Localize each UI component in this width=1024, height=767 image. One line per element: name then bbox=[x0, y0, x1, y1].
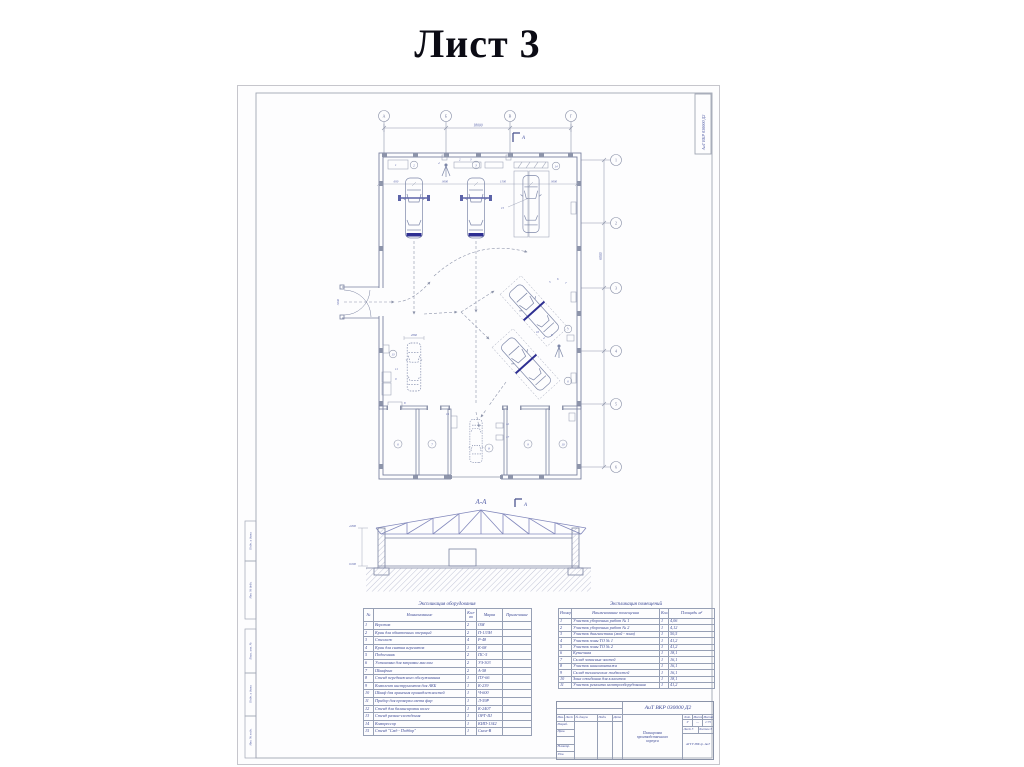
name: Шкаф для хранения принадлежностей bbox=[374, 690, 466, 698]
section-building bbox=[366, 528, 591, 575]
margin-box-label: Взам. инв. № bbox=[249, 642, 253, 659]
hdr-podp: Подп. bbox=[597, 714, 612, 721]
col-name: Наименование bbox=[374, 609, 466, 622]
axis-label: Г bbox=[570, 114, 573, 119]
margin-boxes bbox=[245, 521, 256, 758]
equip-mark: 4 bbox=[543, 336, 545, 340]
table-row: 10Шкаф для хранения принадлежностей1Ч-60… bbox=[364, 690, 532, 698]
dim-height: 4.800 bbox=[349, 524, 356, 528]
name: Стенд передвижного обслуживания bbox=[374, 675, 466, 683]
qty: 1 bbox=[466, 728, 477, 736]
axis-label: 6 bbox=[615, 465, 617, 470]
num: 12 bbox=[364, 705, 374, 713]
sheets-label: Листов bbox=[699, 727, 709, 731]
name: Шкафчик bbox=[374, 667, 466, 675]
tripod-icon bbox=[442, 164, 450, 177]
table-row: 2Кран для обкаточных операций2П-133Н bbox=[364, 629, 532, 637]
note bbox=[503, 675, 532, 683]
mark: УЗ-303 bbox=[477, 659, 503, 667]
equip-mark: 12 bbox=[506, 422, 510, 426]
name: Стенд "Смд - Подбор" bbox=[374, 728, 466, 736]
mark: П-133Н bbox=[477, 629, 503, 637]
car-bumper bbox=[469, 233, 484, 237]
lit-value: У bbox=[682, 719, 692, 726]
floor-plan: А Б В Г 18000 А bbox=[336, 111, 622, 480]
name: Стенд для балансировки колес bbox=[374, 705, 466, 713]
col-name: Наименование помещения bbox=[572, 609, 660, 619]
name: Установка для заправки маслом bbox=[374, 659, 466, 667]
name: Прибор для проверки света фар bbox=[374, 697, 466, 705]
axis-label: В bbox=[509, 114, 512, 119]
qty: 2 bbox=[466, 659, 477, 667]
mark: К-239 bbox=[477, 682, 503, 690]
name: Кран для обкаточных операций bbox=[374, 629, 466, 637]
dim-right: 6000 bbox=[599, 252, 603, 259]
name: Участок ремонта электрооборудования bbox=[572, 682, 660, 688]
axis-label: 5 bbox=[615, 402, 617, 407]
dim-zero: 0.000 bbox=[349, 562, 356, 566]
table-row: 13Стенд развал-схождения1ОРГ-Ш bbox=[364, 713, 532, 721]
room-number: 7 bbox=[431, 442, 433, 446]
col-num: № bbox=[364, 609, 374, 622]
qty: 2 bbox=[466, 652, 477, 660]
table-header-row: № Наименование Кол-во Марка Примечание bbox=[364, 609, 532, 622]
num: 4 bbox=[364, 644, 374, 652]
section-title: А-А bbox=[475, 498, 488, 506]
sheet-label: Лист bbox=[684, 727, 691, 731]
axis-label: 4 bbox=[615, 349, 617, 354]
sheet-code-vertical: АиТ ВКР 030000 Д2 bbox=[701, 115, 706, 151]
left-parking-car bbox=[404, 336, 424, 391]
equip-mark: 1 bbox=[395, 163, 397, 167]
note bbox=[503, 667, 532, 675]
qty: 1 bbox=[466, 675, 477, 683]
note bbox=[503, 728, 532, 736]
equip-mark: 7 bbox=[565, 281, 567, 285]
axis-label: 1 bbox=[615, 158, 617, 163]
table-row: 14Компрессор1КИП-1342 bbox=[364, 720, 532, 728]
section-cut-marker-bottom bbox=[515, 499, 522, 507]
hdr-izm: Изм. bbox=[557, 714, 564, 721]
premises-table-grid: Номер Наименование помещения Кол. Площад… bbox=[558, 608, 715, 689]
diagnostic-zone bbox=[514, 162, 549, 237]
qty: 2 bbox=[466, 667, 477, 675]
dim-line-right bbox=[602, 158, 606, 469]
col-num: Номер bbox=[559, 609, 572, 619]
equip-mark: 2 bbox=[459, 158, 461, 162]
angled-car-1 bbox=[500, 276, 568, 347]
circled-num: 6 bbox=[567, 379, 569, 383]
role-nkontr: Н.контр. bbox=[557, 744, 574, 752]
table-row: 11Прибор для проверки света фар1Л-59Р bbox=[364, 697, 532, 705]
drawing-sheet: АиТ ВКР 030000 Д2 Подп. и дата Инв. № ду… bbox=[237, 85, 720, 765]
note bbox=[503, 690, 532, 698]
mark: ОРГ-Ш bbox=[477, 713, 503, 721]
qty: 1 bbox=[466, 697, 477, 705]
num: 5 bbox=[364, 652, 374, 660]
table-row: 4Кран для снятия агрегатов1К-08 bbox=[364, 644, 532, 652]
circled-num: 3 bbox=[475, 163, 477, 167]
table-row: 3Стеллаж4Р-48 bbox=[364, 637, 532, 645]
equip-mark: 10 bbox=[536, 330, 540, 334]
qty: 1 bbox=[466, 690, 477, 698]
margin-box-label: Инв. № дубл. bbox=[249, 581, 253, 599]
num: 10 bbox=[364, 690, 374, 698]
section-view: А-А А bbox=[349, 498, 591, 592]
table-header-row: Номер Наименование помещения Кол. Площад… bbox=[559, 609, 715, 619]
num: 14 bbox=[364, 720, 374, 728]
ground-hatch bbox=[366, 569, 591, 592]
traffic-flow-arrows bbox=[344, 241, 527, 427]
dim-inner: 3600 bbox=[551, 180, 558, 184]
room-number: 9 bbox=[527, 442, 529, 446]
room-number: 6 bbox=[397, 442, 399, 446]
dim-inner: 1500 bbox=[500, 180, 507, 184]
axis-label: 3 bbox=[615, 286, 617, 291]
tripod-icon bbox=[555, 345, 563, 358]
leader-line bbox=[508, 198, 529, 207]
mark: КИП-1342 bbox=[477, 720, 503, 728]
note bbox=[503, 629, 532, 637]
equipment-table-title: Экспликация оборудования bbox=[363, 602, 531, 607]
service-bay-car-2 bbox=[460, 178, 492, 238]
mark: К-2407 bbox=[477, 705, 503, 713]
qty: 1 bbox=[466, 644, 477, 652]
margin-box-label: Подп. и дата bbox=[249, 532, 253, 551]
name: Стеллаж bbox=[374, 637, 466, 645]
organization: АГТУ ИФ гр. АиТ bbox=[684, 743, 713, 747]
doc-name-line: корпуса bbox=[646, 739, 659, 743]
num: 1 bbox=[364, 622, 374, 630]
mark: ОМ bbox=[477, 622, 503, 630]
bottom-rooms bbox=[379, 405, 581, 480]
equip-mark: 17 bbox=[506, 435, 510, 439]
mark: ПС-5 bbox=[477, 652, 503, 660]
num: 8 bbox=[364, 675, 374, 683]
role-prov: Пров. bbox=[557, 729, 574, 737]
table-row: 15Стенд "Смд - Подбор"1Смол-В bbox=[364, 728, 532, 736]
right-wall-equipment bbox=[567, 202, 576, 421]
title-block: Изм. Лист № докум. Подп. Дата Разраб. Пр… bbox=[556, 701, 714, 760]
qty: 1 bbox=[466, 720, 477, 728]
name: Кран для снятия агрегатов bbox=[374, 644, 466, 652]
table-row: 7Шкафчик2А-58 bbox=[364, 667, 532, 675]
num: 9 bbox=[364, 682, 374, 690]
equipment-table-grid: № Наименование Кол-во Марка Примечание 1… bbox=[363, 608, 532, 736]
table-row: 9Комплект инструментов для АКБ1К-239 bbox=[364, 682, 532, 690]
dim-line-inner bbox=[377, 182, 579, 186]
roof-truss bbox=[376, 510, 586, 534]
qty: 2 bbox=[466, 622, 477, 630]
premises-table: Экспликация помещений Номер Наименование… bbox=[558, 602, 714, 689]
axis-label: 2 bbox=[615, 221, 617, 226]
area: 41,2 bbox=[669, 682, 715, 688]
name: Компрессор bbox=[374, 720, 466, 728]
section-cut-marker-top bbox=[513, 133, 520, 142]
qty: 1 bbox=[466, 705, 477, 713]
sheet-number: 3 bbox=[692, 727, 694, 731]
axis-label: А bbox=[383, 114, 386, 119]
axes-right bbox=[581, 155, 622, 473]
num: 15 bbox=[364, 728, 374, 736]
doc-designation: АиТ ВКР 030000 Д2 bbox=[624, 703, 713, 714]
qty: 1 bbox=[466, 713, 477, 721]
circled-marks bbox=[389, 161, 572, 385]
note bbox=[503, 637, 532, 645]
col-area: Площадь м² bbox=[669, 609, 715, 619]
qty: 4 bbox=[466, 637, 477, 645]
col-mark: Марка bbox=[477, 609, 503, 622]
table-row: 6Установка для заправки маслом2УЗ-303 bbox=[364, 659, 532, 667]
note bbox=[503, 713, 532, 721]
equip-mark: 4 bbox=[438, 161, 440, 165]
circled-num: 14 bbox=[554, 164, 558, 168]
axes-top bbox=[379, 111, 577, 154]
name: Подъемник bbox=[374, 652, 466, 660]
table-row: 1Верстак2ОМ bbox=[364, 622, 532, 630]
dim-total-top: 18000 bbox=[474, 124, 483, 128]
mark: Л-59Р bbox=[477, 697, 503, 705]
dim-car: 2060 bbox=[411, 333, 418, 337]
col-qty: Кол. bbox=[660, 609, 669, 619]
mark: ПУ-66 bbox=[477, 675, 503, 683]
margin-box-label: Инв. № подл. bbox=[249, 728, 253, 746]
role-razrab: Разраб. bbox=[557, 721, 574, 729]
circled-num: 2 bbox=[413, 163, 415, 167]
mark: А-58 bbox=[477, 667, 503, 675]
equip-mark: 5 bbox=[549, 280, 551, 284]
slide: Лист 3 bbox=[0, 0, 1024, 767]
hdr-list: Лист bbox=[564, 714, 574, 721]
note bbox=[503, 652, 532, 660]
qty: 1 bbox=[466, 682, 477, 690]
note bbox=[503, 697, 532, 705]
role-blank bbox=[557, 736, 574, 744]
dim-inner: 600 bbox=[394, 180, 399, 184]
note bbox=[503, 659, 532, 667]
equip-mark: 9 bbox=[395, 377, 397, 381]
name: Комплект инструментов для АКБ bbox=[374, 682, 466, 690]
section-mark-letter: А bbox=[521, 136, 526, 141]
equip-mark: 8 bbox=[404, 401, 406, 405]
dim-inner: 3600 bbox=[442, 180, 449, 184]
table-row: 5Подъемник2ПС-5 bbox=[364, 652, 532, 660]
num: 6 bbox=[364, 659, 374, 667]
car-bumper bbox=[407, 233, 422, 237]
bay-car bbox=[468, 419, 484, 462]
note bbox=[503, 644, 532, 652]
sheets-total: 3 bbox=[710, 727, 712, 731]
room-number: 8 bbox=[488, 446, 490, 450]
room-number: 10 bbox=[561, 442, 565, 446]
equip-mark: 6 bbox=[557, 277, 559, 281]
hdr-data: Дата bbox=[612, 714, 622, 721]
mark: Р-48 bbox=[477, 637, 503, 645]
equip-mark: 15 bbox=[501, 206, 505, 210]
col-note: Примечание bbox=[503, 609, 532, 622]
mass-value: — bbox=[692, 719, 702, 726]
table-row: 8Стенд передвижного обслуживания1ПУ-66 bbox=[364, 675, 532, 683]
note bbox=[503, 622, 532, 630]
note bbox=[503, 705, 532, 713]
equip-mark: 11 bbox=[395, 367, 398, 371]
note bbox=[503, 720, 532, 728]
hdr-dokum: № докум. bbox=[574, 714, 597, 721]
equipment-table: Экспликация оборудования № Наименование … bbox=[363, 602, 531, 736]
num: 13 bbox=[364, 713, 374, 721]
note bbox=[503, 682, 532, 690]
dim-gate: 3000 bbox=[336, 298, 340, 305]
margin-box-label: Подп. и дата bbox=[249, 685, 253, 704]
num: 2 bbox=[364, 629, 374, 637]
premises-table-title: Экспликация помещений bbox=[558, 602, 714, 607]
equip-mark: 16 bbox=[446, 412, 450, 416]
section-mark-letter: А bbox=[523, 503, 528, 508]
name: Верстак bbox=[374, 622, 466, 630]
qty: 1 bbox=[660, 682, 669, 688]
mark: К-08 bbox=[477, 644, 503, 652]
section-dims bbox=[358, 528, 368, 566]
circled-num: 13 bbox=[391, 352, 395, 356]
table-row: 12Стенд для балансировки колес1К-2407 bbox=[364, 705, 532, 713]
service-bay-car-1 bbox=[398, 178, 430, 238]
role-utv: Утв. bbox=[557, 751, 574, 759]
num: 11 bbox=[364, 697, 374, 705]
mark: Смол-В bbox=[477, 728, 503, 736]
col-qty: Кол-во bbox=[466, 609, 477, 622]
qty: 2 bbox=[466, 629, 477, 637]
equip-mark: 3 bbox=[470, 158, 472, 162]
mark: Ч-600 bbox=[477, 690, 503, 698]
axis-label: Б bbox=[445, 114, 448, 119]
angled-car-2 bbox=[492, 329, 560, 400]
name: Стенд развал-схождения bbox=[374, 713, 466, 721]
num: 3 bbox=[364, 637, 374, 645]
table-row: 11Участок ремонта электрооборудования141… bbox=[559, 682, 715, 688]
scale-value: 1:75 bbox=[702, 719, 713, 726]
num: 7 bbox=[364, 667, 374, 675]
page-title: Лист 3 bbox=[237, 20, 718, 67]
num: 11 bbox=[559, 682, 572, 688]
